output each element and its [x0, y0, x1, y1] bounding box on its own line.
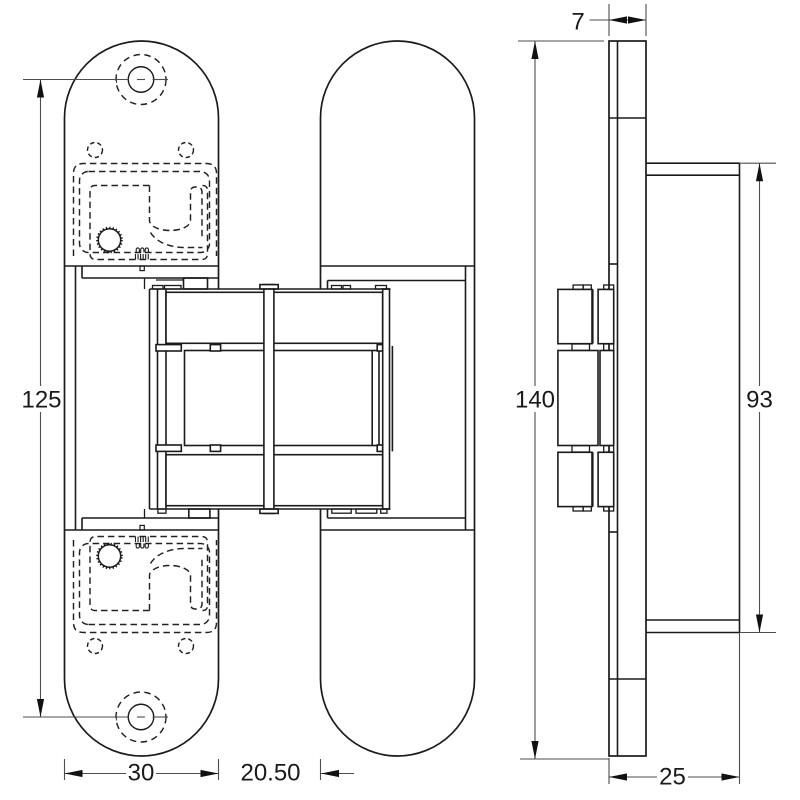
- svg-text:20.50: 20.50: [240, 760, 300, 787]
- svg-text:30: 30: [128, 760, 155, 787]
- svg-text:125: 125: [21, 387, 61, 414]
- svg-text:25: 25: [659, 764, 686, 791]
- svg-text:7: 7: [571, 9, 584, 36]
- svg-text:93: 93: [746, 387, 773, 414]
- svg-text:140: 140: [515, 387, 555, 414]
